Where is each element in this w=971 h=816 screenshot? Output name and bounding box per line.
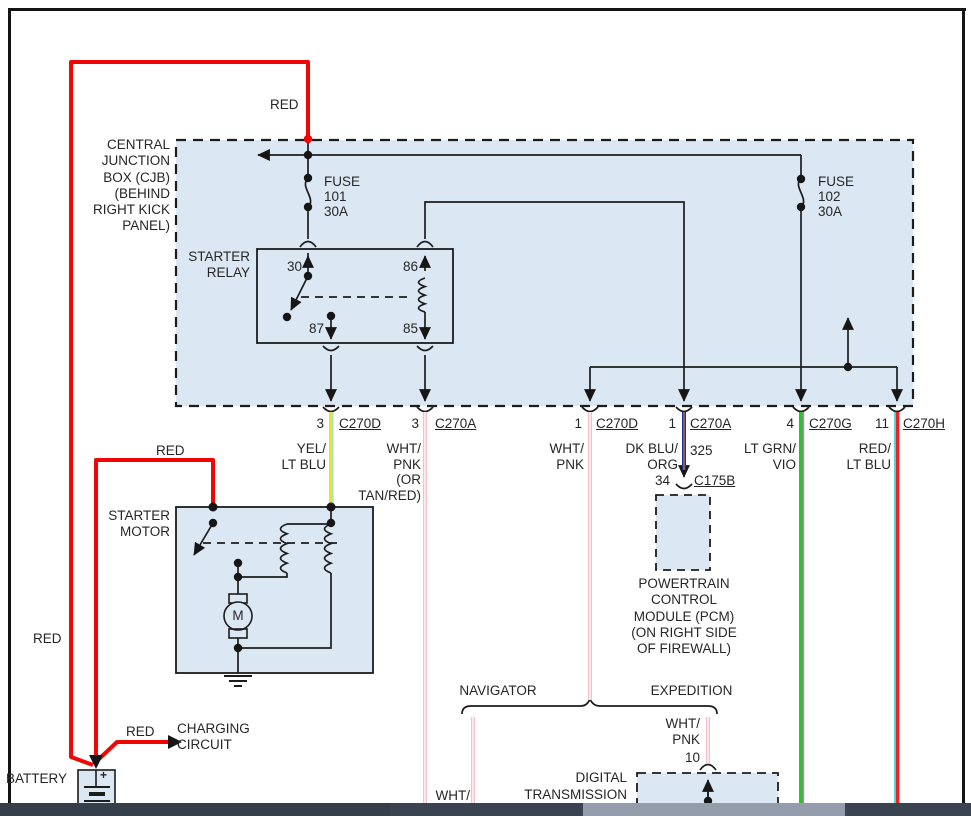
variant-navigator: NAVIGATOR	[440, 683, 556, 699]
tr-sensor-label: DIGITAL TRANSMISSION	[495, 770, 627, 803]
connector-c270a-b: C270A	[690, 416, 731, 432]
starter-motor-label: STARTER MOTOR	[98, 508, 170, 541]
connector-c270h: C270H	[903, 416, 945, 432]
battery-plus-terminal: +	[100, 768, 107, 784]
exit-arc-c270h	[889, 407, 905, 412]
pin-c270a-1: 1	[654, 416, 676, 432]
wire-red-lt-blu	[895, 412, 898, 803]
exit-arc-c270g	[793, 407, 809, 412]
fuse-101-label: FUSE 101 30A	[324, 174, 360, 220]
wire-label-ltgrn-vio: LT GRN/ VIO	[716, 441, 796, 472]
pin-c270g-4: 4	[772, 416, 794, 432]
pin-c270h-11: 11	[861, 416, 889, 432]
pcm-connector-arc	[676, 484, 692, 489]
exit-arc-c270a1	[676, 407, 692, 412]
motor-m-symbol: M	[230, 608, 246, 624]
connector-c270a-a: C270A	[435, 416, 476, 432]
connector-c270g: C270G	[809, 416, 852, 432]
variant-expedition: EXPEDITION	[634, 683, 749, 699]
pcm-pin-34: 34	[642, 473, 670, 489]
charging-circuit-label: CHARGING CIRCUIT	[177, 721, 250, 754]
pin-c270a-3: 3	[397, 416, 419, 432]
red-label-left: RED	[33, 631, 62, 647]
wire-label-dkblu-org: DK BLU/ ORG	[594, 441, 678, 472]
bottom-wire-label-partial: WHT/	[428, 788, 470, 804]
wire-label-whtpnk: WHT/ PNK	[504, 441, 584, 472]
pin-c270d-3: 3	[302, 416, 324, 432]
connector-c270d-a: C270D	[339, 416, 381, 432]
cjb-label: CENTRAL JUNCTION BOX (CJB) (BEHIND RIGHT…	[76, 137, 170, 235]
exit-arc-c270a3	[417, 407, 433, 412]
variant-brace	[462, 699, 717, 714]
pcm-label: POWERTRAIN CONTROL MODULE (PCM) (ON RIGH…	[610, 576, 758, 657]
starter-relay-label: STARTER RELAY	[170, 249, 250, 282]
diagram-canvas: CENTRAL JUNCTION BOX (CJB) (BEHIND RIGHT…	[0, 0, 971, 816]
red-label-motor-feed: RED	[156, 443, 185, 459]
red-label-top: RED	[270, 97, 299, 113]
fuse-102-label: FUSE 102 30A	[818, 174, 854, 220]
wire-label-whtpnk-tan: WHT/ PNK (OR TAN/RED)	[337, 441, 421, 503]
scrollbar-track-left	[0, 803, 390, 816]
tr-pin-10: 10	[672, 750, 700, 766]
tr-wire-label: WHT/ PNK	[650, 716, 700, 747]
wire-label-yel-ltblu: YEL/ LT BLU	[246, 441, 326, 472]
relay-pin-86: 86	[388, 259, 418, 275]
relay-pin-85: 85	[388, 321, 418, 337]
tr-connector-arc	[700, 765, 716, 771]
relay-pin-30: 30	[272, 259, 302, 275]
wire-yel-ltblu	[331, 412, 333, 507]
battery-label: BATTERY	[6, 771, 67, 787]
circuit-number-325: 325	[690, 443, 713, 459]
horizontal-scrollbar[interactable]	[0, 803, 971, 816]
connector-c175b: C175B	[694, 473, 735, 489]
exit-arc-c270d3	[323, 407, 339, 412]
exit-arc-c270d1	[582, 407, 598, 412]
wire-label-red-ltblu: RED/ LT BLU	[811, 441, 891, 472]
pin-c270d-1: 1	[560, 416, 582, 432]
connector-c270d-b: C270D	[596, 416, 638, 432]
pcm-box	[656, 495, 710, 570]
scrollbar-thumb[interactable]	[583, 803, 845, 816]
relay-pin-87: 87	[294, 321, 324, 337]
red-label-charging: RED	[126, 724, 155, 740]
wire-lt-grn-vio	[801, 412, 803, 803]
